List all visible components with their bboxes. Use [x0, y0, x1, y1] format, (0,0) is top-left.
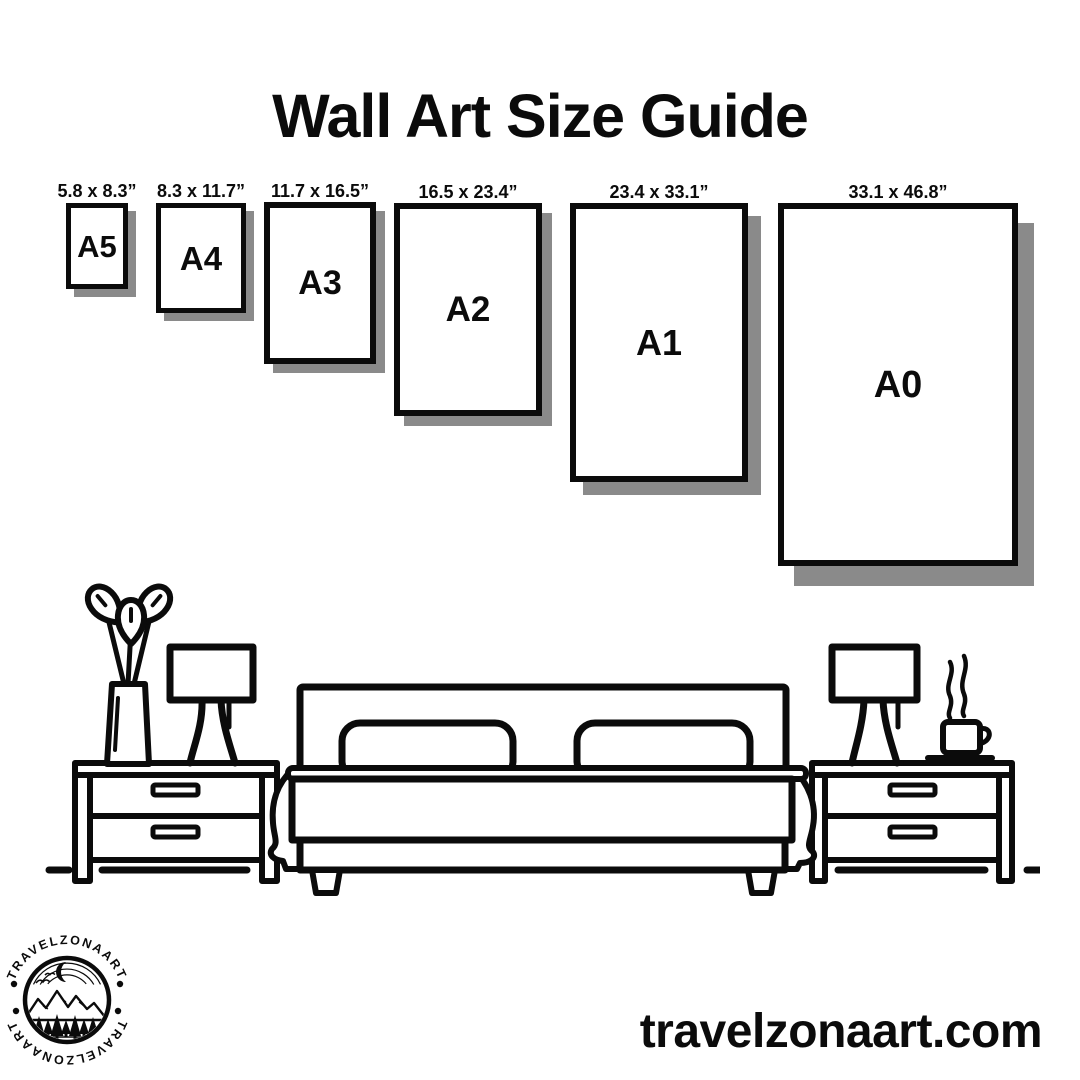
- lamp-right-icon: [832, 647, 917, 763]
- paper-a3-dimensions: 11.7 x 16.5”: [271, 181, 369, 202]
- paper-a4: 8.3 x 11.7” A4: [156, 203, 246, 313]
- nightstand-right-icon: [812, 763, 1012, 881]
- paper-a5-code: A5: [77, 231, 117, 262]
- brand-logo: TRAVELZONAART TRAVELZONAART: [5, 928, 129, 1072]
- paper-a0-dimensions: 33.1 x 46.8”: [848, 182, 947, 203]
- coffee-cup-icon: [928, 656, 992, 758]
- paper-a1-dimensions: 23.4 x 33.1”: [609, 182, 708, 203]
- paper-a2: 16.5 x 23.4” A2: [394, 203, 542, 416]
- bed-icon: [271, 687, 814, 893]
- nightstand-left-icon: [75, 763, 277, 881]
- lamp-left-icon: [170, 647, 253, 763]
- paper-a3-code: A3: [298, 266, 341, 300]
- paper-a1: 23.4 x 33.1” A1: [570, 203, 748, 482]
- website-url: travelzonaart.com: [640, 1004, 1042, 1059]
- paper-a2-dimensions: 16.5 x 23.4”: [418, 182, 517, 203]
- paper-a4-code: A4: [180, 242, 222, 275]
- bedroom-illustration: [40, 580, 1040, 905]
- paper-a5: 5.8 x 8.3” A5: [66, 203, 128, 289]
- paper-a2-code: A2: [446, 292, 491, 327]
- paper-a0-code: A0: [874, 366, 923, 404]
- paper-a0: 33.1 x 46.8” A0: [778, 203, 1018, 566]
- paper-a5-dimensions: 5.8 x 8.3”: [57, 181, 136, 202]
- paper-a1-code: A1: [636, 325, 682, 361]
- page-title: Wall Art Size Guide: [0, 81, 1080, 151]
- wall-art-size-guide-poster: Wall Art Size Guide 5.8 x 8.3” A5 8.3 x …: [0, 0, 1080, 1080]
- paper-a3: 11.7 x 16.5” A3: [264, 202, 376, 364]
- plant-icon: [82, 581, 176, 764]
- paper-a4-dimensions: 8.3 x 11.7”: [157, 181, 245, 202]
